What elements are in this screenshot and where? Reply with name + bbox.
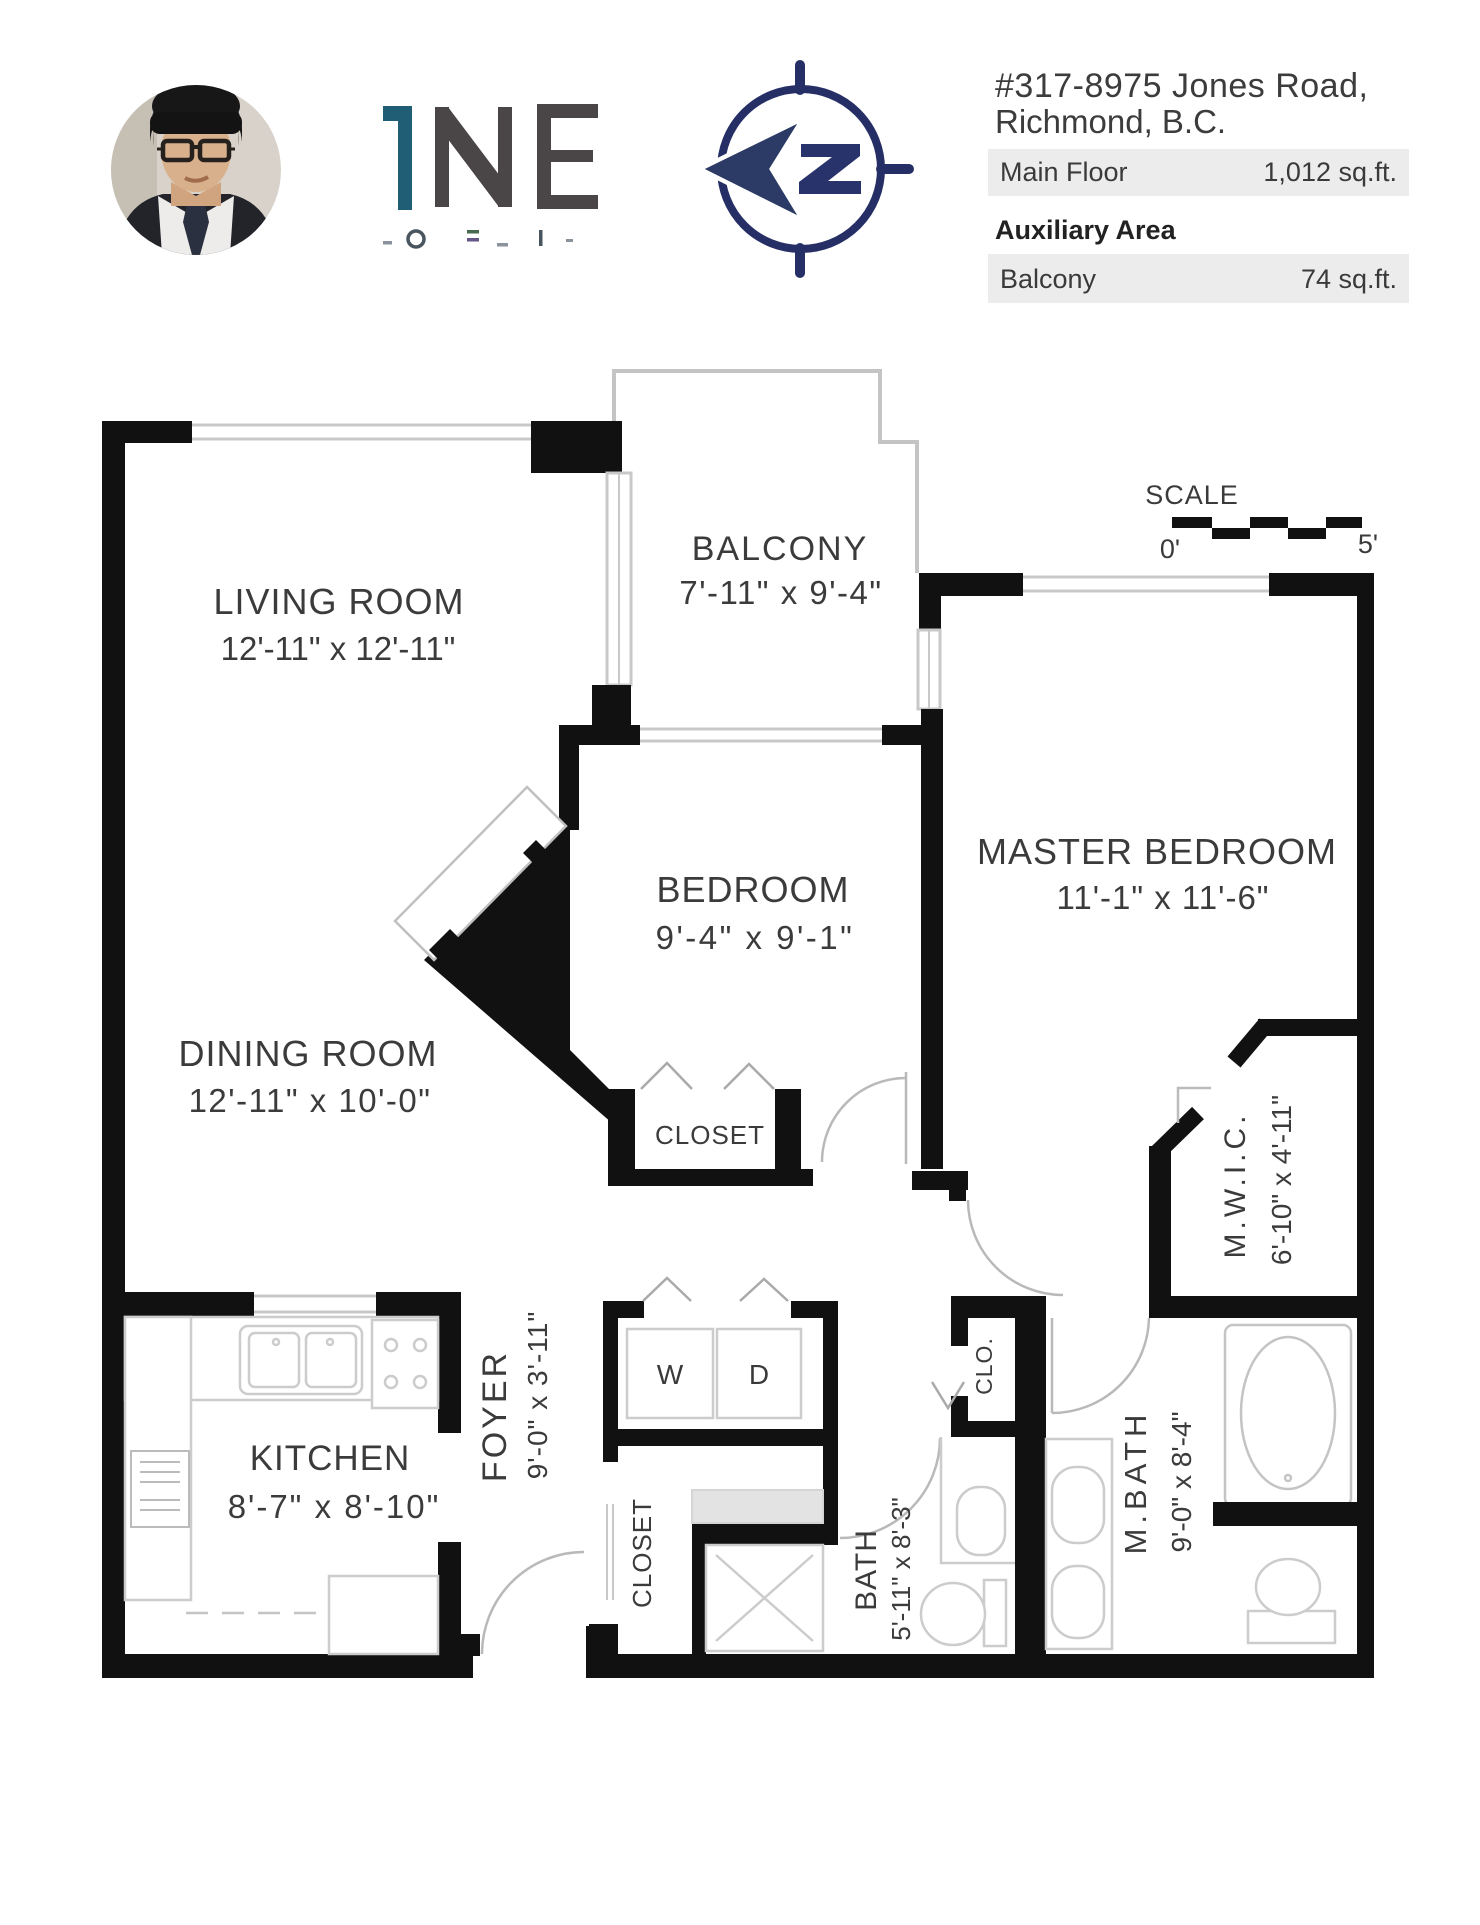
svg-text:CLOSET: CLOSET — [655, 1120, 765, 1150]
svg-text:Richmond, B.C.: Richmond, B.C. — [995, 103, 1226, 140]
svg-text:D: D — [749, 1359, 769, 1390]
svg-text:Balcony: Balcony — [1000, 264, 1097, 294]
svg-text:MASTER BEDROOM: MASTER BEDROOM — [977, 831, 1337, 872]
svg-text:CLOSET: CLOSET — [627, 1498, 657, 1608]
svg-text:74 sq.ft.: 74 sq.ft. — [1301, 264, 1397, 294]
svg-text:9'-0" x 8'-4": 9'-0" x 8'-4" — [1166, 1411, 1197, 1552]
svg-text:9'-4" x 9'-1": 9'-4" x 9'-1" — [656, 919, 855, 956]
svg-text:12'-11" x 12'-11": 12'-11" x 12'-11" — [221, 630, 456, 667]
svg-text:BEDROOM: BEDROOM — [656, 869, 849, 910]
svg-text:1,012 sq.ft.: 1,012 sq.ft. — [1263, 157, 1397, 187]
svg-text:5'-11" x 8'-3": 5'-11" x 8'-3" — [886, 1497, 916, 1641]
svg-text:W: W — [657, 1359, 684, 1390]
svg-text:DINING ROOM: DINING ROOM — [179, 1033, 438, 1074]
svg-text:6'-10" x 4'-11": 6'-10" x 4'-11" — [1266, 1095, 1297, 1265]
svg-text:FOYER: FOYER — [476, 1350, 514, 1482]
svg-text:#317-8975 Jones Road,: #317-8975 Jones Road, — [995, 67, 1368, 105]
svg-text:SCALE: SCALE — [1145, 480, 1239, 510]
svg-text:7'-11" x 9'-4": 7'-11" x 9'-4" — [679, 574, 882, 611]
svg-text:BATH: BATH — [850, 1529, 883, 1611]
svg-text:Auxiliary Area: Auxiliary Area — [995, 215, 1177, 245]
svg-text:5': 5' — [1358, 529, 1378, 559]
svg-text:M.BATH: M.BATH — [1118, 1410, 1153, 1555]
svg-text:Main Floor: Main Floor — [1000, 157, 1128, 187]
svg-text:LIVING ROOM: LIVING ROOM — [213, 581, 464, 622]
svg-text:BALCONY: BALCONY — [692, 530, 869, 568]
svg-text:KITCHEN: KITCHEN — [250, 1439, 411, 1478]
svg-text:12'-11" x 10'-0": 12'-11" x 10'-0" — [189, 1082, 432, 1119]
svg-text:0': 0' — [1160, 534, 1180, 564]
svg-text:11'-1" x 11'-6": 11'-1" x 11'-6" — [1056, 879, 1269, 916]
svg-text:CLO.: CLO. — [971, 1337, 997, 1395]
svg-text:M.W.I.C.: M.W.I.C. — [1219, 1112, 1252, 1259]
svg-text:8'-7" x 8'-10": 8'-7" x 8'-10" — [228, 1488, 441, 1525]
svg-text:9'-0" x 3'-11": 9'-0" x 3'-11" — [522, 1311, 553, 1480]
